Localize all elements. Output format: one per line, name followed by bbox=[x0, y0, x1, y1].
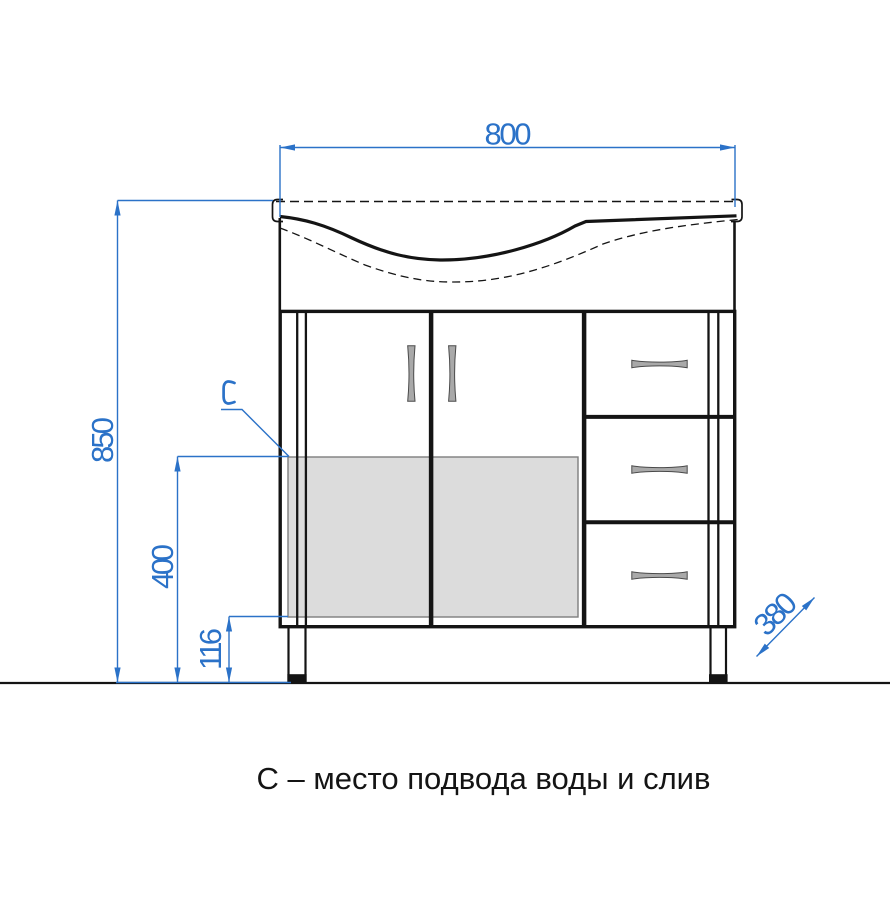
svg-text:116: 116 bbox=[193, 628, 228, 670]
svg-text:380: 380 bbox=[747, 585, 804, 642]
svg-text:400: 400 bbox=[145, 544, 180, 589]
svg-text:850: 850 bbox=[85, 417, 120, 463]
svg-text:800: 800 bbox=[485, 117, 532, 152]
svg-text:С – место подвода воды и слив: С – место подвода воды и слив bbox=[257, 761, 711, 796]
